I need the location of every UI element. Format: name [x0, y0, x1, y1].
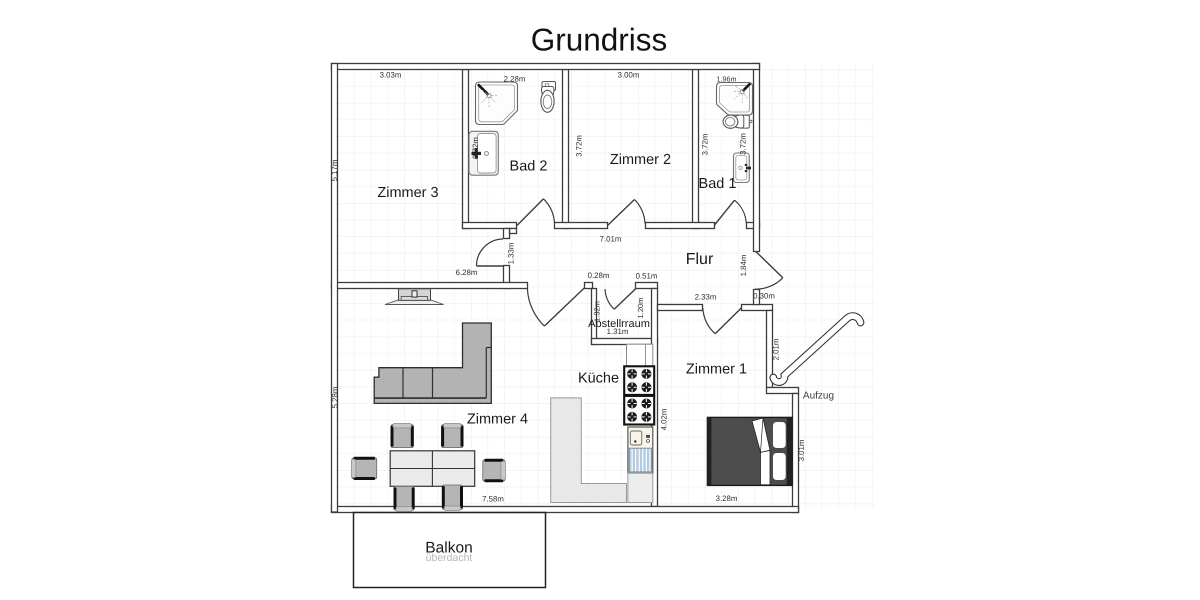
svg-text:3.03m: 3.03m — [380, 71, 402, 80]
svg-text:6.28m: 6.28m — [456, 268, 478, 277]
svg-text:3.00m: 3.00m — [618, 71, 640, 80]
svg-text:0.30m: 0.30m — [753, 292, 775, 301]
svg-text:3.72m: 3.72m — [471, 137, 480, 159]
svg-text:3.72m: 3.72m — [701, 134, 710, 156]
svg-text:Grundriss: Grundriss — [531, 22, 668, 58]
svg-text:5.28m: 5.28m — [331, 387, 340, 409]
svg-text:Bad 2: Bad 2 — [510, 159, 548, 175]
svg-text:1.31m: 1.31m — [607, 327, 629, 336]
svg-text:2.28m: 2.28m — [504, 75, 526, 84]
svg-text:0.51m: 0.51m — [636, 272, 658, 281]
svg-text:Zimmer 2: Zimmer 2 — [610, 152, 671, 168]
svg-text:Zimmer 1: Zimmer 1 — [686, 362, 747, 378]
svg-text:3.28m: 3.28m — [716, 494, 738, 503]
svg-text:Flur: Flur — [686, 251, 714, 268]
svg-text:7.01m: 7.01m — [600, 235, 622, 244]
svg-text:1.32m: 1.32m — [593, 301, 602, 322]
svg-text:überdacht: überdacht — [426, 552, 473, 564]
svg-text:1.20m: 1.20m — [636, 298, 645, 319]
svg-text:1.96m: 1.96m — [717, 75, 737, 84]
svg-text:Aufzug: Aufzug — [803, 391, 834, 402]
svg-text:4.02m: 4.02m — [660, 409, 669, 431]
svg-text:1.33m: 1.33m — [507, 243, 516, 265]
svg-text:Küche: Küche — [578, 371, 619, 387]
svg-text:7.58m: 7.58m — [482, 495, 504, 504]
svg-text:3.72m: 3.72m — [575, 135, 584, 157]
svg-text:Bad 1: Bad 1 — [699, 176, 737, 192]
svg-text:2.01m: 2.01m — [772, 339, 781, 361]
svg-text:3.72m: 3.72m — [739, 133, 748, 155]
svg-text:1.84m: 1.84m — [739, 255, 748, 277]
svg-text:2.33m: 2.33m — [695, 293, 717, 302]
svg-text:5.17m: 5.17m — [330, 160, 339, 182]
svg-text:Zimmer 3: Zimmer 3 — [377, 185, 438, 201]
svg-text:0.28m: 0.28m — [588, 271, 610, 280]
svg-text:Zimmer 4: Zimmer 4 — [467, 412, 528, 428]
svg-text:3.01m: 3.01m — [797, 440, 806, 462]
